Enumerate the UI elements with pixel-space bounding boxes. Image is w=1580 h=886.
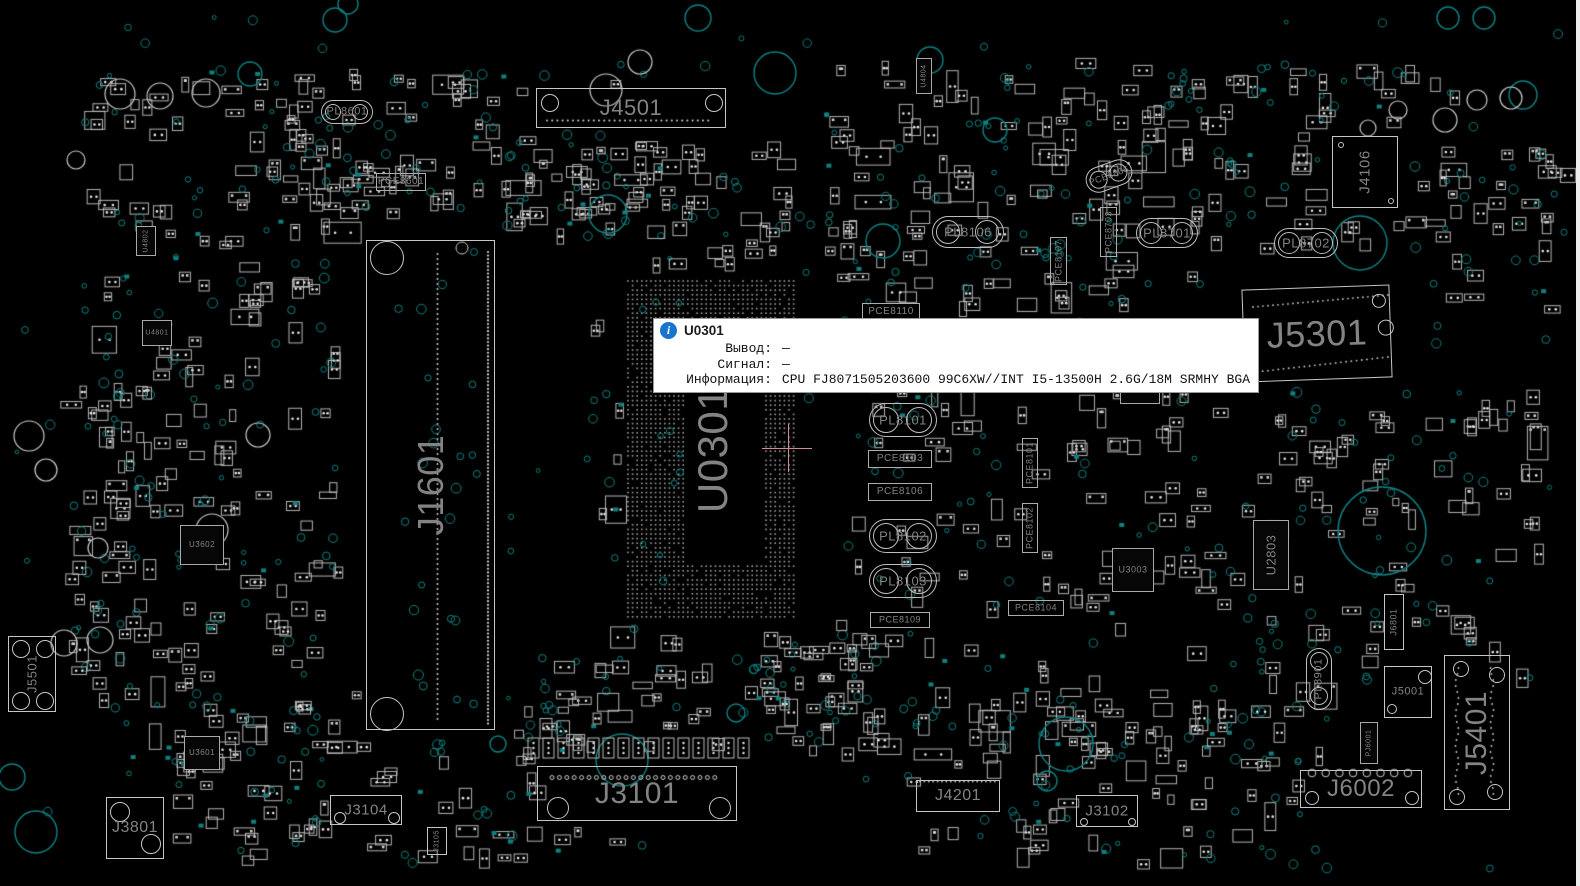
component-ref-label: PCE8109 — [879, 616, 921, 625]
mount-hole — [1449, 789, 1465, 805]
component-ref-label: J4501 — [600, 97, 662, 119]
component-PCE8103[interactable]: PCE8103 — [868, 450, 932, 468]
component-PL8701[interactable]: PL8701 — [1136, 218, 1198, 248]
component-ref-label: PJ6001 — [1366, 730, 1373, 757]
component-PCE8806[interactable]: PCE8806 — [1082, 156, 1136, 197]
component-J5501[interactable]: J5501 — [8, 636, 56, 712]
component-ref-label: PL8901 — [1314, 659, 1325, 700]
mount-hole — [370, 241, 404, 275]
mount-hole — [1128, 818, 1136, 826]
component-J5401[interactable]: J5401 — [1444, 655, 1510, 810]
component-ref-label: U4804 — [921, 64, 928, 87]
component-PL8901[interactable]: PL8901 — [1306, 648, 1332, 710]
mount-hole — [1372, 294, 1386, 308]
component-PCE8104[interactable]: PCE8104 — [1008, 600, 1064, 616]
component-ref-label: J3801 — [112, 820, 158, 836]
component-ref-label: PCE8103 — [877, 454, 923, 464]
component-ref-label: PL8102 — [879, 530, 927, 543]
component-ref-label: PCE8110 — [868, 307, 914, 317]
component-J3105[interactable]: J3105 — [427, 827, 447, 855]
component-ref-label: J3104 — [344, 803, 387, 818]
tooltip-header: i U0301 — [660, 322, 1250, 339]
component-ref-label: PL8103 — [879, 575, 927, 588]
mount-hole — [1487, 784, 1503, 800]
mount-hole — [1453, 661, 1469, 677]
component-tooltip: i U0301 Вывод: — Сигнал: — Информация: C… — [653, 318, 1259, 393]
component-J3102[interactable]: J3102 — [1076, 795, 1138, 827]
info-icon: i — [660, 322, 677, 339]
component-ref-label: U2803 — [1265, 535, 1278, 576]
component-PCE8601[interactable]: PCE8601 — [376, 173, 426, 191]
tooltip-row-info: Информация: CPU FJ8071505203600 99C6XW//… — [660, 372, 1250, 388]
component-PL8702[interactable]: PL8702 — [1274, 228, 1338, 258]
component-ref-label: U4801 — [145, 330, 168, 337]
component-U3602[interactable]: U3602 — [180, 525, 224, 565]
tooltip-row-value: CPU FJ8071505203600 99C6XW//INT I5-13500… — [782, 372, 1250, 388]
mount-hole — [541, 94, 559, 112]
component-ref-label: PL8701 — [1143, 227, 1191, 240]
mount-hole — [141, 834, 161, 854]
mount-hole — [547, 797, 569, 819]
component-ref-label: PCE8601 — [378, 177, 424, 187]
component-U4802[interactable]: U4802 — [136, 226, 156, 256]
mount-hole — [1305, 791, 1319, 805]
component-PCE8107[interactable]: PCE8107 — [1050, 237, 1067, 285]
crosshair-horizontal — [762, 448, 812, 449]
component-PL8103[interactable]: PL8103 — [869, 564, 937, 598]
tooltip-row-value: — — [782, 357, 790, 373]
component-ref-label: PL8101 — [879, 414, 927, 427]
mount-hole — [1418, 670, 1432, 684]
mount-hole — [705, 94, 723, 112]
component-ref-label: J1601 — [413, 435, 449, 536]
mount-hole — [370, 697, 404, 731]
mount-hole — [1388, 198, 1394, 204]
mount-hole — [709, 797, 731, 819]
component-ref-label: U3602 — [189, 541, 215, 549]
component-U4804[interactable]: U4804 — [916, 58, 932, 94]
mount-hole — [1387, 704, 1397, 714]
crosshair-vertical — [788, 424, 789, 472]
component-J6002[interactable]: J6002 — [1300, 770, 1422, 808]
tooltip-row-label: Вывод: — [660, 341, 772, 357]
component-J4106[interactable]: J4106 — [1332, 136, 1398, 208]
component-PCE8102[interactable]: PCE8102 — [1022, 503, 1038, 553]
component-J5001[interactable]: J5001 — [1384, 666, 1432, 718]
window-edge-strip — [1576, 0, 1580, 886]
component-ref-label: U0301 — [692, 387, 734, 513]
component-ref-label: PL8601 — [327, 107, 368, 118]
component-J3801[interactable]: J3801 — [106, 797, 164, 859]
component-PL8106[interactable]: PL8106 — [932, 216, 1004, 248]
mount-hole — [388, 812, 400, 824]
component-PL8102[interactable]: PL8102 — [869, 519, 937, 553]
component-PJ6001[interactable]: PJ6001 — [1360, 722, 1378, 764]
component-ref-label: J5401 — [1462, 690, 1492, 774]
component-ref-label: PCE8703 — [1104, 211, 1113, 253]
component-PL8101[interactable]: PL8101 — [869, 403, 937, 437]
component-ref-label: J5501 — [26, 655, 39, 693]
mount-hole — [36, 692, 54, 710]
mount-hole — [1338, 142, 1344, 148]
component-ref-label: PL8702 — [1282, 237, 1330, 250]
mount-hole — [1405, 791, 1419, 805]
tooltip-row-pin: Вывод: — — [660, 341, 1250, 357]
component-U2803[interactable]: U2803 — [1253, 520, 1289, 590]
tooltip-row-signal: Сигнал: — — [660, 357, 1250, 373]
component-J5301[interactable]: J5301 — [1241, 284, 1392, 382]
mount-hole — [1378, 319, 1395, 336]
component-ref-label: PL8106 — [944, 226, 992, 239]
component-PL8601[interactable]: PL8601 — [321, 100, 373, 124]
component-ref-label: J3105 — [434, 830, 441, 852]
component-J3104[interactable]: J3104 — [330, 795, 402, 825]
component-U3601[interactable]: U3601 — [184, 736, 220, 770]
mount-hole — [1489, 667, 1505, 683]
component-J4501[interactable]: J4501 — [536, 88, 726, 128]
component-ref-label: J5001 — [1392, 687, 1424, 698]
component-ref-label: U3601 — [189, 749, 215, 757]
component-ref-label: J3101 — [595, 779, 679, 809]
component-ref-label: U4802 — [143, 229, 150, 252]
tooltip-row-label: Информация: — [660, 372, 772, 388]
component-ref-label: J3102 — [1085, 804, 1128, 819]
component-U4801[interactable]: U4801 — [142, 320, 172, 346]
component-ref-label: U3003 — [1118, 566, 1147, 575]
component-PCE8101[interactable]: PCE8101 — [1022, 438, 1038, 488]
tooltip-row-value: — — [782, 341, 790, 357]
component-ref-label: PCE8102 — [1026, 507, 1035, 549]
component-J3101[interactable]: J3101 — [537, 766, 737, 821]
component-PCE8109[interactable]: PCE8109 — [870, 612, 930, 628]
tooltip-component-ref: U0301 — [684, 323, 724, 338]
component-ref-label: PCE8104 — [1015, 604, 1057, 613]
component-ref-label: J6801 — [1390, 608, 1399, 635]
board-canvas[interactable]: J4501J3101J1601J5301J5401J6002J3801J3104… — [0, 0, 1580, 886]
component-J6801[interactable]: J6801 — [1384, 594, 1404, 650]
component-ref-label: PCE8101 — [1026, 442, 1035, 484]
component-ref-label: J5301 — [1266, 314, 1368, 353]
components-layer: J4501J3101J1601J5301J5401J6002J3801J3104… — [0, 0, 1580, 886]
component-ref-label: J6002 — [1327, 777, 1395, 801]
component-ref-label: J4201 — [935, 788, 981, 804]
component-ref-label: PCE8107 — [1054, 240, 1063, 282]
component-J1601[interactable]: J1601 — [366, 240, 495, 730]
component-ref-label: J4106 — [1358, 150, 1373, 193]
component-ref-label: PCE8106 — [877, 487, 923, 497]
component-PCE8703[interactable]: PCE8703 — [1100, 207, 1117, 257]
component-J4201[interactable]: J4201 — [916, 780, 1000, 812]
component-PCE8106[interactable]: PCE8106 — [868, 483, 932, 501]
component-U3003[interactable]: U3003 — [1112, 548, 1154, 592]
tooltip-row-label: Сигнал: — [660, 357, 772, 373]
mount-hole — [12, 692, 30, 710]
